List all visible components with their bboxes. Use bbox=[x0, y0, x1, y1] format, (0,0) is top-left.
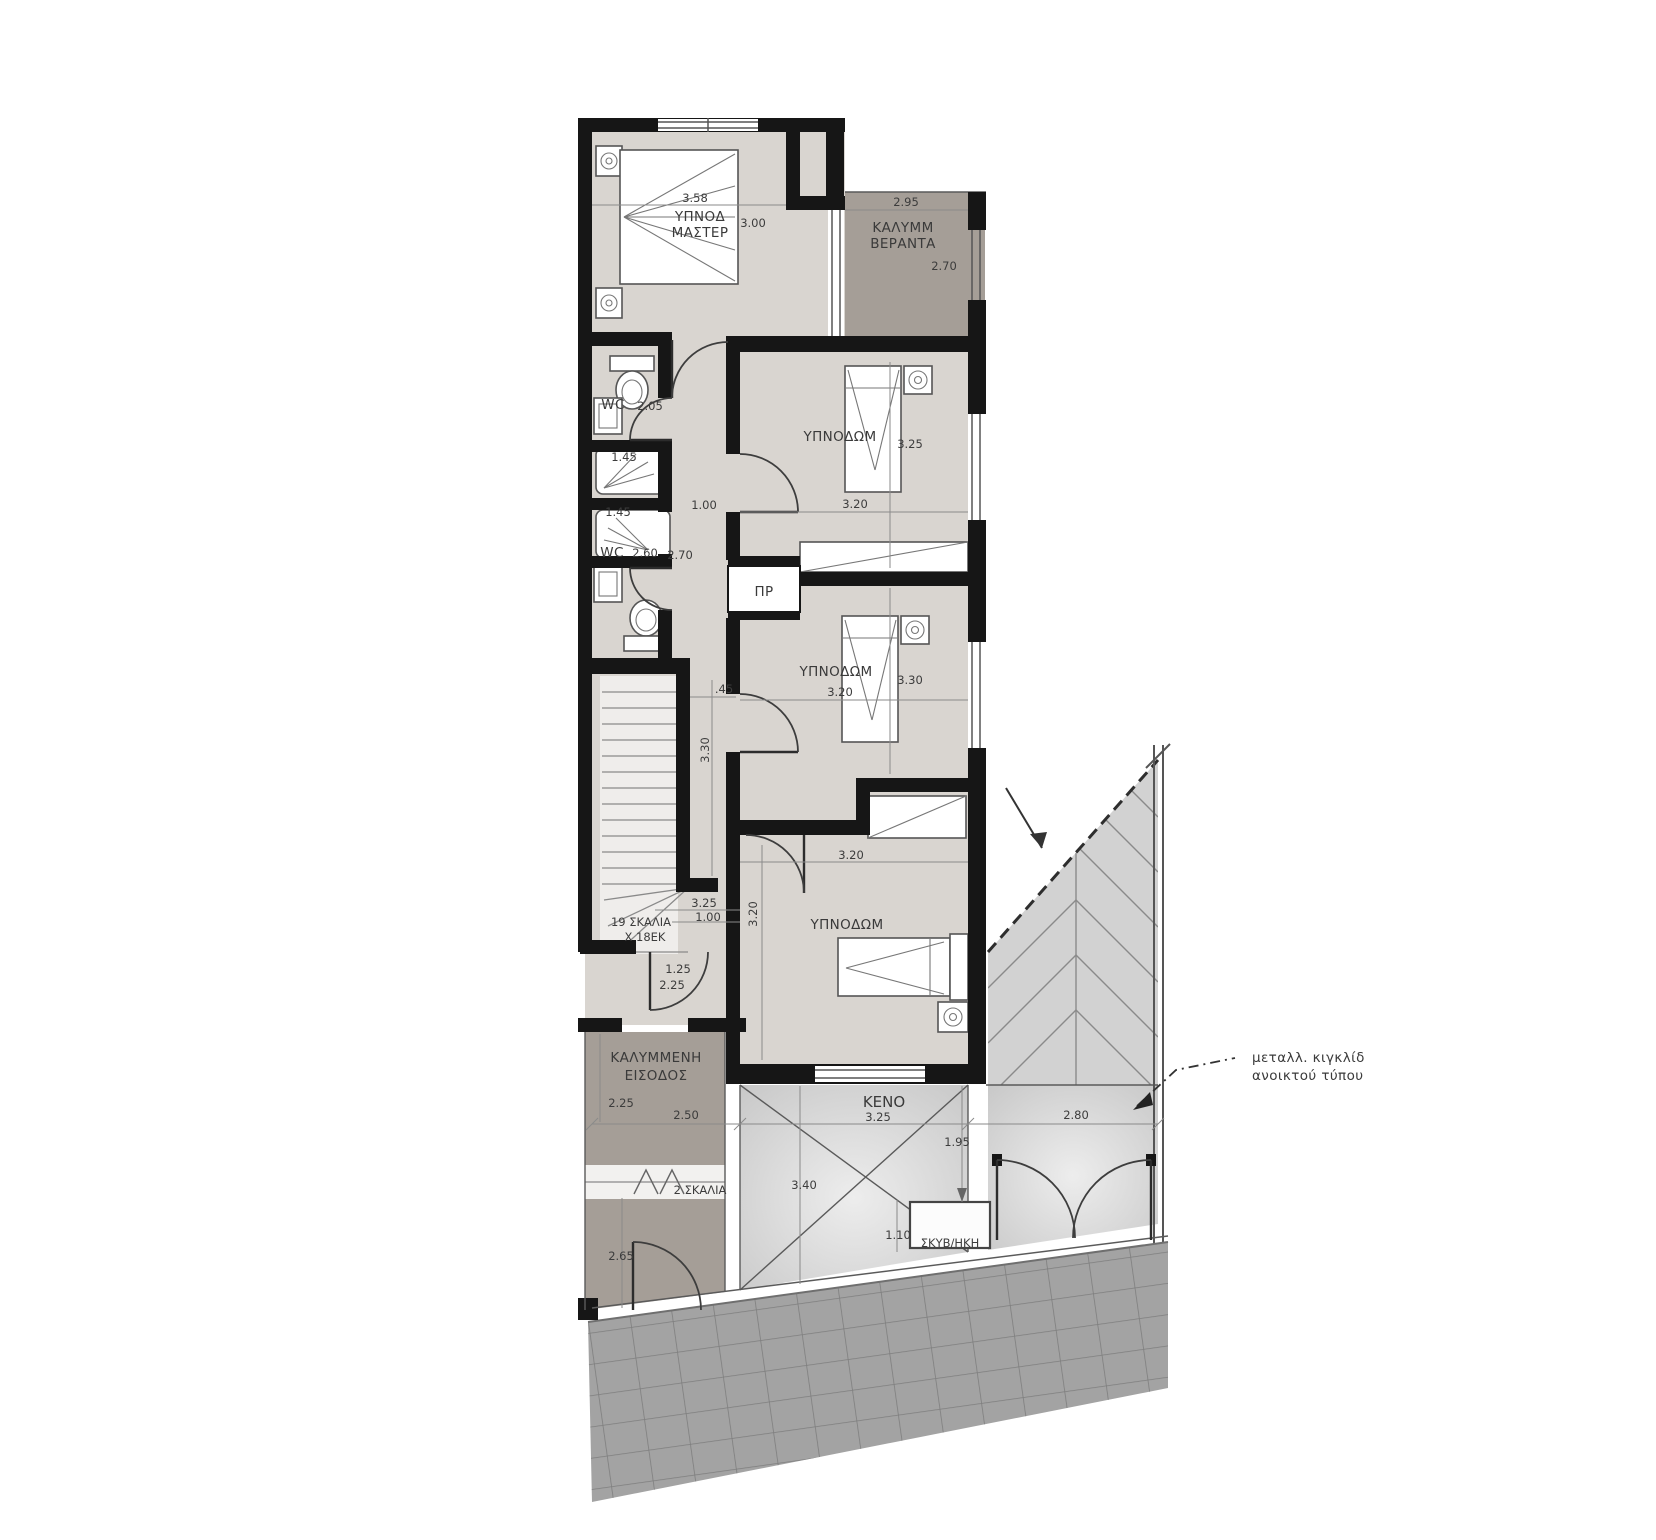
room-label-void: ΚΕΝΟ bbox=[863, 1093, 905, 1111]
dim-bedroom1-h: 3.25 bbox=[897, 437, 923, 451]
note-railing-2: ανοικτού τύπου bbox=[1252, 1068, 1363, 1084]
bedroom1-window bbox=[968, 414, 986, 520]
dim-corridor: 1.00 bbox=[691, 498, 717, 512]
dim-veranda-width: 2.95 bbox=[893, 195, 919, 209]
dim-entry-b: 2.25 bbox=[659, 978, 685, 992]
dim-master-width: 3.58 bbox=[682, 191, 708, 205]
dim-master-height: 3.00 bbox=[740, 216, 766, 230]
bedroom3-window bbox=[815, 1066, 925, 1082]
room-label-veranda-2: ΒΕΡΑΝΤΑ bbox=[870, 236, 936, 252]
slope-hatch-area bbox=[986, 735, 1158, 1098]
label-stairs-2: Χ 18ΕΚ bbox=[625, 930, 666, 944]
floor-plan-drawing: 3.58 ΥΠΝΟΔ ΜΑΣΤΕΡ 3.00 2.95 ΚΑΛΥΜΜ ΒΕΡΑΝ… bbox=[0, 0, 1656, 1536]
room-label-entrance-2: ΕΙΣΟΔΟΣ bbox=[625, 1068, 688, 1084]
room-label-bedroom1: ΥΠΝΟΔΩΜ bbox=[802, 429, 876, 445]
dim-bedroom3-h: 3.20 bbox=[746, 901, 760, 927]
dim-shower1: 1.45 bbox=[611, 450, 637, 464]
veranda-area bbox=[845, 192, 985, 350]
master-top-window bbox=[658, 118, 758, 132]
room-label-wc2: WC bbox=[600, 545, 624, 561]
dim-wc2-b: 2.70 bbox=[667, 548, 693, 562]
room-label-bedroom2: ΥΠΝΟΔΩΜ bbox=[798, 664, 872, 680]
dim-entry-a: 1.25 bbox=[665, 962, 691, 976]
dim-void-w: 3.25 bbox=[865, 1110, 891, 1124]
dim-porch-h: 2.25 bbox=[608, 1096, 634, 1110]
dim-wc2-a: 2.60 bbox=[632, 546, 658, 560]
dim-hall-offset: .45 bbox=[715, 682, 733, 696]
dim-void-h: 3.40 bbox=[791, 1178, 817, 1192]
dim-bedroom2-w: 3.20 bbox=[827, 685, 853, 699]
label-stairs-1: 19 ΣΚΑΛΙΑ bbox=[611, 915, 671, 929]
dim-bedroom3-w: 3.20 bbox=[838, 848, 864, 862]
label-bin: ΣΚΥΒ/ΗΚΗ bbox=[921, 1236, 979, 1250]
dim-lower-h: 2.65 bbox=[608, 1249, 634, 1263]
label-steps2: 2 ΣΚΑΛΙΑ bbox=[674, 1183, 727, 1197]
room-label-veranda-1: ΚΑΛΥΜΜ bbox=[872, 220, 933, 236]
dim-bin-h: 1.10 bbox=[885, 1228, 911, 1242]
room-label-closet: ΠΡ bbox=[754, 584, 773, 600]
dim-wc1: 2.05 bbox=[637, 399, 663, 413]
staircase bbox=[600, 676, 688, 954]
dim-bedroom1-w: 3.20 bbox=[842, 497, 868, 511]
room-label-wc1: WC bbox=[601, 397, 625, 413]
dim-gate: 2.80 bbox=[1063, 1108, 1089, 1122]
floorplan-page: 3.58 ΥΠΝΟΔ ΜΑΣΤΕΡ 3.00 2.95 ΚΑΛΥΜΜ ΒΕΡΑΝ… bbox=[0, 0, 1656, 1536]
note-railing-1: μεταλλ. κιγκλίδ bbox=[1252, 1050, 1365, 1066]
dim-side: 1.95 bbox=[944, 1135, 970, 1149]
dim-bedroom2-h: 3.30 bbox=[897, 673, 923, 687]
room-label-master-1: ΥΠΝΟΔ bbox=[674, 209, 726, 225]
dim-veranda-height: 2.70 bbox=[931, 259, 957, 273]
bedroom2-window bbox=[968, 642, 986, 748]
dim-stair-exit: 1.00 bbox=[695, 910, 721, 924]
dim-hall-height: 3.30 bbox=[698, 737, 712, 763]
dim-shower2: 1.45 bbox=[605, 505, 631, 519]
dim-stair-w: 3.25 bbox=[691, 896, 717, 910]
room-label-master-2: ΜΑΣΤΕΡ bbox=[672, 225, 729, 241]
room-label-bedroom3: ΥΠΝΟΔΩΜ bbox=[809, 917, 883, 933]
room-label-entrance-1: ΚΑΛΥΜΜΕΝΗ bbox=[610, 1050, 701, 1066]
dim-porch-w: 2.50 bbox=[673, 1108, 699, 1122]
veranda-left-window bbox=[828, 210, 844, 336]
